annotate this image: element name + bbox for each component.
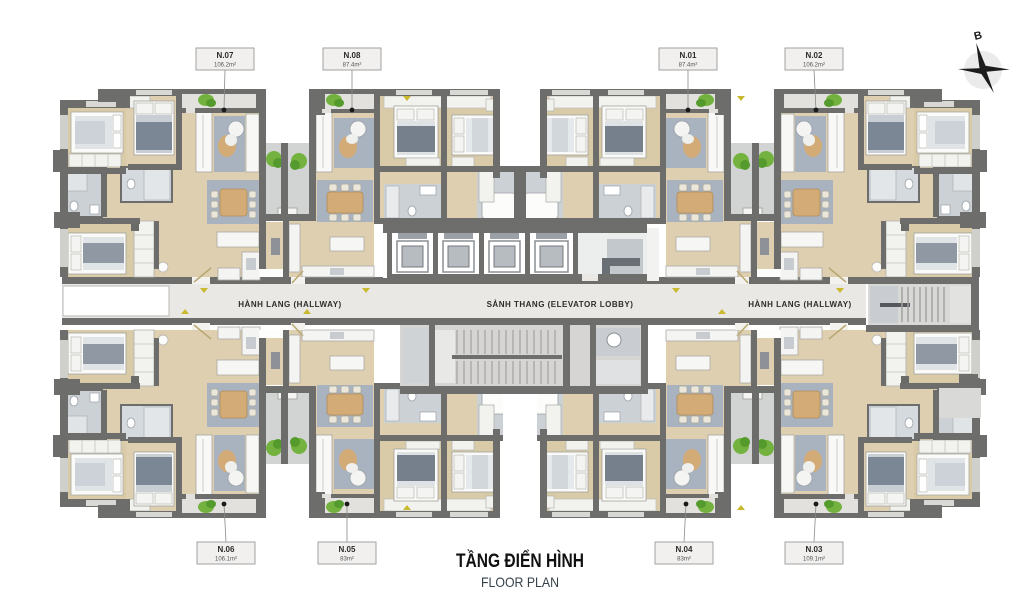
svg-text:TẦNG ĐIỂN HÌNH: TẦNG ĐIỂN HÌNH — [456, 550, 584, 572]
svg-text:109.1m²: 109.1m² — [803, 557, 825, 563]
svg-text:FLOOR PLAN: FLOOR PLAN — [481, 574, 559, 590]
svg-text:83m²: 83m² — [340, 557, 354, 563]
svg-text:SẢNH THANG (ELEVATOR LOBBY): SẢNH THANG (ELEVATOR LOBBY) — [487, 300, 634, 309]
svg-text:87.4m²: 87.4m² — [679, 63, 698, 69]
svg-text:HÀNH LANG (HALLWAY): HÀNH LANG (HALLWAY) — [748, 300, 851, 309]
svg-text:N.07: N.07 — [217, 51, 234, 60]
svg-text:N.02: N.02 — [806, 51, 823, 60]
svg-text:106.2m²: 106.2m² — [803, 63, 825, 69]
svg-text:83m²: 83m² — [677, 557, 691, 563]
svg-text:106.1m²: 106.1m² — [215, 557, 237, 563]
svg-text:N.06: N.06 — [218, 545, 235, 554]
svg-text:87.4m²: 87.4m² — [343, 63, 362, 69]
svg-text:N.04: N.04 — [676, 545, 693, 554]
svg-text:N.08: N.08 — [344, 51, 361, 60]
svg-text:N.01: N.01 — [680, 51, 697, 60]
svg-text:HÀNH LANG (HALLWAY): HÀNH LANG (HALLWAY) — [238, 300, 341, 309]
svg-text:106.2m²: 106.2m² — [214, 63, 236, 69]
svg-text:N.03: N.03 — [806, 545, 823, 554]
svg-text:N.05: N.05 — [339, 545, 356, 554]
